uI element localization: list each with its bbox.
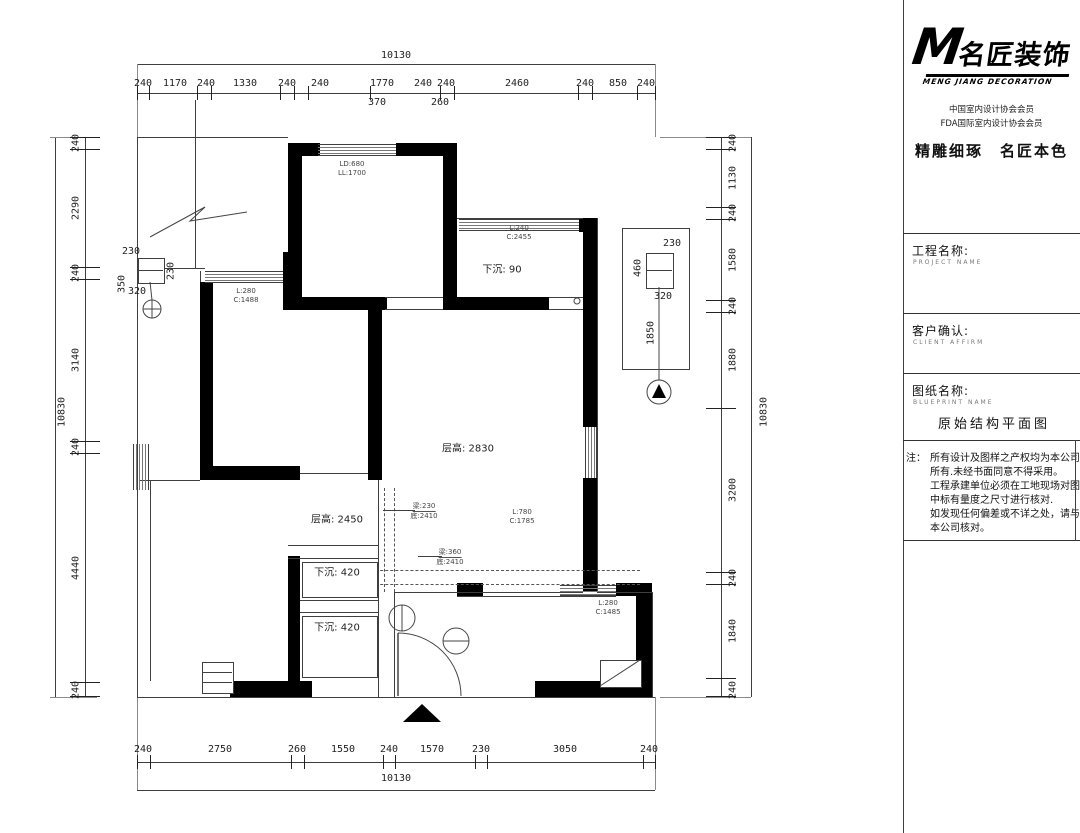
room-label-sunken-420a: 下沉: 420 [314,564,360,579]
level-marker-triangle [652,384,666,398]
window-annotation: C:1485 [595,608,620,616]
door-annotation: LD:680 [339,160,364,168]
title-block-divider [903,233,1080,234]
window-annotation: L:780 [512,508,532,516]
drawing-name-label: 图纸名称: [912,382,969,399]
company-slogan: 精雕细琢 名匠本色 [903,140,1080,161]
window-annotation: L:240 [509,224,529,232]
break-line-icon [150,207,247,237]
logo-english-name: MENG JIANG DECORATION [899,78,1077,86]
window-seat-diagonal [600,660,640,686]
entry-door-arc [398,633,461,696]
window-annotation: L:280 [236,287,256,295]
door-annotation: LL:1700 [338,169,366,177]
shaft-dim: 460 [633,259,644,277]
leader-line [150,282,152,300]
room-label-ceiling-2450: 层高: 2450 [311,511,363,526]
pipe-icon [574,298,580,304]
logo-company-name: 名匠装饰 [956,40,1072,71]
window-annotation: C:2455 [506,233,531,241]
title-block-divider [903,313,1080,314]
title-block-divider [903,540,1080,541]
drawing-name-label-en: BLUEPRINT NAME [913,399,994,406]
leader-line [383,510,415,511]
project-name-label: 工程名称: [912,242,969,259]
leader-line [418,556,442,557]
note-line: 所有.未经书面同意不得采用。 [930,463,1063,478]
floor-plan-sheet: 10130 10130 10830 10830 240 1170 240 133… [0,0,1080,833]
room-label-sunken-420b: 下沉: 420 [314,619,360,634]
title-block-right-rule [1075,440,1076,540]
notes-label: 注： [906,449,926,464]
window-annotation: C:1785 [509,517,534,525]
entry-arrow-icon [403,704,441,722]
shaft-dim: 320 [654,291,672,302]
membership-line-1: 中国室内设计协会会员 [903,103,1080,115]
note-line: 工程承建单位必须在工地现场对图 [930,477,1080,492]
window-annotation: C:1488 [233,296,258,304]
room-label-sunken-90: 下沉: 90 [482,261,521,276]
shaft-dim: 230 [122,246,140,257]
company-logo: M名匠装饰 MENG JIANG DECORATION [903,22,1080,86]
beam-annotation: 底:2410 [436,557,463,567]
membership-line-2: FDA国际室内设计协会会员 [903,117,1080,129]
shaft-dim: 230 [663,238,681,249]
symbol-overlay [0,0,900,833]
window-annotation: L:280 [598,599,618,607]
beam-annotation: 底:2410 [410,511,437,521]
shaft-dim: 230 [166,262,177,280]
client-confirm-label: 客户确认: [912,322,969,339]
note-line: 中标有量度之尺寸进行核对. [930,491,1053,506]
title-block-divider [903,373,1080,374]
project-name-label-en: PROJECT NAME [913,259,982,266]
shaft-dim: 350 [117,275,128,293]
room-label-ceiling-2830: 层高: 2830 [442,440,494,455]
drawing-name: 原始结构平面图 [938,413,1050,432]
title-block-divider [903,440,1080,441]
shaft-dim: 320 [128,286,146,297]
logo-m-glyph: M [909,18,964,76]
note-line: 本公司核对。 [930,519,990,534]
shaft-dim: 1850 [646,321,657,345]
note-line: 如发现任何偏差或不详之处，请与 [930,505,1080,520]
client-confirm-label-en: CLIENT AFFIRM [913,339,984,346]
note-line: 所有设计及图样之产权均为本公司 [930,449,1080,464]
